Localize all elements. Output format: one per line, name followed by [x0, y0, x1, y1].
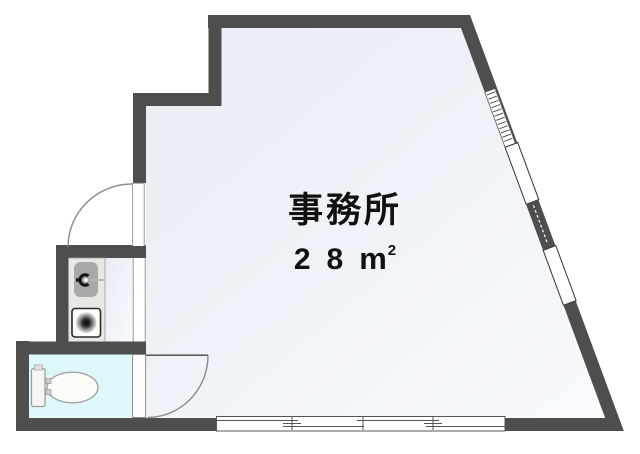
room-area-exponent: 2	[388, 242, 396, 259]
entrance-door	[68, 183, 145, 247]
entrance-doorway	[132, 183, 145, 246]
toilet-hinge-right	[46, 390, 51, 395]
toilet-tank	[32, 369, 46, 407]
toilet-bowl	[47, 372, 98, 403]
bottom-sliding-window	[217, 417, 506, 432]
toilet-hinge-left	[46, 379, 51, 384]
kitchenette	[69, 258, 106, 342]
room-label-block: 事務所 28m2	[240, 193, 450, 276]
kitchenette-floor-strip	[105, 258, 133, 342]
faucet-center-dot	[84, 278, 88, 282]
toilet-doorway	[133, 355, 146, 418]
room-area-number: 28	[294, 243, 359, 276]
toilet-tank-button	[35, 365, 43, 370]
stove-burner-icon	[76, 312, 97, 333]
room-name-label: 事務所	[240, 193, 450, 229]
kitchenette-opening	[133, 258, 146, 342]
room-area-unit: m	[359, 241, 387, 276]
room-area-label: 28m2	[240, 235, 450, 276]
entrance-door-swing-arc	[68, 184, 132, 247]
floor-plan: 事務所 28m2	[0, 0, 640, 454]
